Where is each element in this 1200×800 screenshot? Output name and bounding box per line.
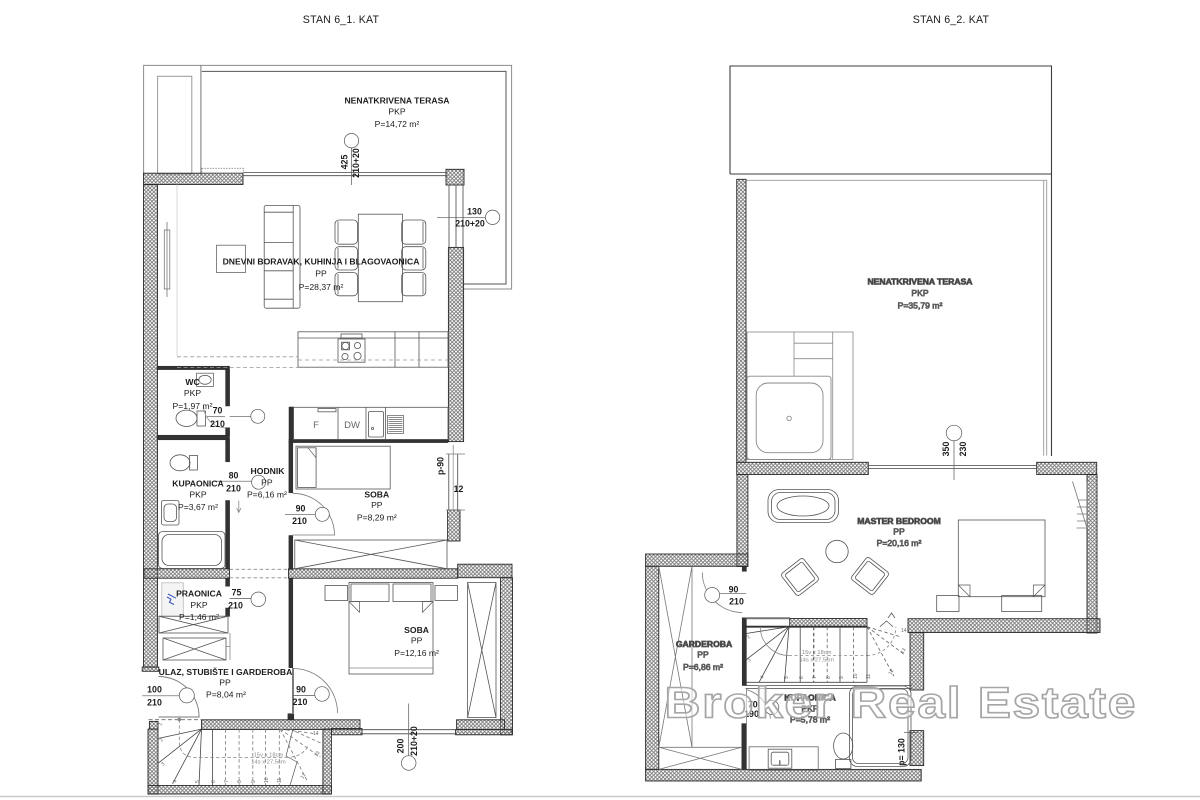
- svg-text:14s x 27,5cm: 14s x 27,5cm: [251, 760, 286, 766]
- svg-text:DW: DW: [344, 420, 360, 431]
- svg-text:P=14,72 m²: P=14,72 m²: [375, 119, 420, 129]
- svg-text:WC: WC: [185, 377, 199, 387]
- svg-text:425: 425: [340, 155, 350, 170]
- svg-text:PKP: PKP: [189, 490, 206, 500]
- svg-text:PP: PP: [219, 678, 231, 688]
- svg-text:STAN 6_1. KAT: STAN 6_1. KAT: [303, 14, 380, 26]
- svg-text:350: 350: [941, 442, 951, 457]
- svg-text:210: 210: [228, 601, 243, 611]
- svg-text:230: 230: [958, 442, 968, 457]
- svg-text:210: 210: [293, 697, 308, 707]
- svg-text:80: 80: [229, 471, 239, 481]
- svg-text:210+20: 210+20: [455, 219, 485, 229]
- svg-text:200: 200: [396, 739, 406, 754]
- svg-text:SOBA: SOBA: [404, 625, 429, 635]
- svg-text:90: 90: [296, 685, 306, 695]
- svg-text:210: 210: [147, 698, 162, 708]
- svg-text:210: 210: [729, 597, 744, 607]
- svg-text:70: 70: [213, 406, 223, 416]
- svg-text:PP: PP: [371, 500, 383, 510]
- svg-text:PP: PP: [411, 636, 423, 646]
- svg-text:PRAONICA: PRAONICA: [176, 589, 222, 599]
- svg-text:KUPAONICA: KUPAONICA: [172, 479, 223, 489]
- svg-text:P=6,16 m²: P=6,16 m²: [247, 489, 287, 499]
- svg-text:100: 100: [147, 685, 162, 695]
- svg-text:P=28,37 m²: P=28,37 m²: [299, 282, 344, 292]
- svg-text:P=8,04 m²: P=8,04 m²: [206, 690, 246, 700]
- svg-text:8: 8: [237, 780, 243, 783]
- svg-text:NENATKRIVENA TERASA: NENATKRIVENA TERASA: [867, 277, 972, 287]
- svg-text:14: 14: [313, 731, 319, 737]
- svg-text:7: 7: [224, 780, 230, 783]
- svg-text:DNEVNI BORAVAK, KUHINJA I BLAG: DNEVNI BORAVAK, KUHINJA I BLAGOVAONICA: [223, 257, 420, 267]
- svg-text:210: 210: [226, 484, 241, 494]
- svg-text:15v x 18cm: 15v x 18cm: [254, 753, 284, 759]
- svg-text:GARDEROBA: GARDEROBA: [676, 639, 732, 649]
- svg-text:P=35,79 m²: P=35,79 m²: [898, 301, 943, 311]
- svg-text:10: 10: [264, 777, 270, 783]
- svg-text:90: 90: [296, 504, 306, 514]
- svg-text:210+20: 210+20: [351, 148, 361, 178]
- svg-text:P=20,16 m²: P=20,16 m²: [877, 538, 922, 548]
- svg-text:15v x 18cm: 15v x 18cm: [802, 650, 832, 656]
- svg-text:P=1,97 m²: P=1,97 m²: [173, 401, 213, 411]
- svg-text:14s x 27,5cm: 14s x 27,5cm: [799, 658, 834, 664]
- svg-text:STAN 6_2. KAT: STAN 6_2. KAT: [913, 14, 990, 26]
- svg-text:P=12,16 m²: P=12,16 m²: [394, 648, 439, 658]
- svg-text:P=3,67 m²: P=3,67 m²: [178, 502, 218, 512]
- svg-text:210: 210: [210, 419, 225, 429]
- svg-text:P=8,29 m²: P=8,29 m²: [357, 513, 397, 523]
- svg-text:PP: PP: [315, 269, 327, 279]
- svg-text:F: F: [313, 420, 319, 431]
- svg-text:p-90: p-90: [436, 457, 446, 475]
- svg-text:PKP: PKP: [190, 600, 207, 610]
- svg-text:HODNIK: HODNIK: [251, 466, 286, 476]
- svg-text:6: 6: [211, 780, 217, 783]
- svg-text:p= 130: p= 130: [897, 738, 907, 766]
- svg-text:210: 210: [292, 516, 307, 526]
- svg-text:P=6,86 m²: P=6,86 m²: [683, 662, 723, 672]
- svg-text:PKP: PKP: [388, 107, 405, 117]
- svg-text:MASTER BEDROOM: MASTER BEDROOM: [857, 516, 941, 526]
- svg-text:PP: PP: [697, 650, 709, 660]
- svg-text:PP: PP: [893, 527, 905, 537]
- svg-text:ULAZ, STUBIŠTE I GARDEROBA: ULAZ, STUBIŠTE I GARDEROBA: [159, 666, 293, 677]
- svg-text:5: 5: [195, 780, 201, 783]
- svg-text:NENATKRIVENA TERASA: NENATKRIVENA TERASA: [344, 96, 449, 106]
- svg-text:90: 90: [729, 584, 739, 594]
- svg-text:PKP: PKP: [911, 288, 928, 298]
- svg-text:SOBA: SOBA: [364, 490, 389, 500]
- svg-text:P=1,46 m²: P=1,46 m²: [179, 612, 219, 622]
- svg-text:75: 75: [232, 588, 242, 598]
- svg-text:11: 11: [277, 778, 283, 783]
- svg-text:9: 9: [251, 780, 257, 783]
- svg-text:130: 130: [467, 207, 482, 217]
- svg-text:PKP: PKP: [184, 388, 201, 398]
- svg-text:PP: PP: [261, 477, 273, 487]
- svg-text:Broker Real Estate: Broker Real Estate: [665, 678, 1138, 727]
- svg-text:210+20: 210+20: [409, 726, 419, 756]
- svg-text:14: 14: [901, 628, 907, 634]
- svg-text:12: 12: [454, 484, 464, 494]
